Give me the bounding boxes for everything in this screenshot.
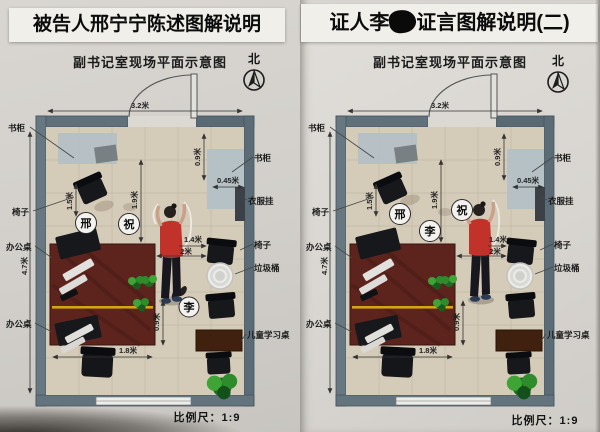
kids-desk [496,330,542,351]
floor-stain [438,208,452,216]
trash-bin [207,263,233,289]
clothes-rack [235,187,245,221]
floor-plan-right: 3.2米 4.7米 1.5米 1.9米 0.9米 0.45米 1.4米 2米 1… [300,0,600,432]
label-office-desk-lower: 办公桌 [306,319,332,329]
dim-chair: 1.5米 [64,192,74,210]
dim-room-width: 3.2米 [131,100,149,110]
dim-desk-chair: 2米 [489,246,501,256]
svg-text:祝: 祝 [124,217,135,231]
label-chair-right: 椅子 [254,240,272,250]
label-bookcase-left: 书柜 [8,123,26,133]
dim-desk-width: 1.8米 [419,345,437,355]
dim-bookcase-depth: 0.9米 [492,148,502,166]
dim-room-width: 3.2米 [431,100,449,110]
dim-person-chair: 1.4米 [184,234,202,244]
label-kids-desk: 儿童学习桌 [546,330,590,340]
marker-zhu: 祝 [452,200,473,221]
label-bookcase-right: 书柜 [554,153,572,163]
label-chair-left: 椅子 [312,207,330,217]
svg-text:李: 李 [424,224,437,238]
chair-right-lower [205,292,237,320]
dim-door: 1.9米 [429,191,439,209]
bookcase-shadow [94,145,118,164]
dim-room-height: 4.7米 [319,257,329,275]
svg-text:邢: 邢 [80,217,92,230]
left-document-page: 被告人邢宁宁陈述图解说明 副书记室现场平面示意图 北 [0,0,300,432]
dim-desk-offset: 0.9米 [451,313,461,331]
dim-person-chair: 1.4米 [489,234,507,244]
dim-door: 1.9米 [129,191,139,209]
dim-desk-width: 1.8米 [119,345,137,355]
label-bookcase-left: 书柜 [308,123,326,133]
svg-text:邢: 邢 [394,208,406,221]
dim-desk-chair: 2米 [180,246,192,256]
kids-chair [505,351,532,374]
scale-label: 比例尺：1:9 [174,410,241,424]
label-trash-bin: 垃圾桶 [254,263,280,273]
label-office-desk-upper: 办公桌 [306,242,332,252]
label-chair-left: 椅子 [12,207,30,217]
door-opening [428,116,496,127]
label-chair-right: 椅子 [554,240,572,250]
chair-bottom-center [79,346,116,378]
label-trash-bin: 垃圾桶 [554,263,580,273]
trash-bin [507,263,533,289]
door-opening [128,116,196,127]
label-bookcase-right: 书柜 [254,153,272,163]
window [96,397,191,405]
floor-plan-left: 3.2米 4.7米 1.5米 1.9米 0.9米 0.45米 1.4米 2米 1… [0,0,300,432]
label-clothes-rack: 衣服挂 [548,196,574,206]
label-kids-desk: 儿童学习桌 [246,330,290,340]
window [396,397,491,405]
scale-label: 比例尺：1:9 [512,413,579,427]
clothes-rack [535,187,545,221]
bookcase-shadow [394,145,418,164]
chair-right-upper [205,237,237,265]
dim-room-height: 4.7米 [19,257,29,275]
dim-desk-offset: 0.9米 [151,313,161,331]
marker-zhu: 祝 [119,214,140,235]
right-document-page: 证人李证言图解说明(二) 副书记室现场平面示意图 北 [300,0,600,432]
dim-chair: 1.5米 [364,192,374,210]
dim-bookcase-depth: 0.9米 [192,148,202,166]
label-office-desk-lower: 办公桌 [6,319,32,329]
marker-xing: 邢 [390,204,411,225]
marker-li: 李 [179,297,199,317]
marker-xing: 邢 [76,213,97,234]
chair-bottom-center [379,346,416,378]
chair-right-lower [505,292,537,320]
svg-text:李: 李 [183,300,196,314]
dim-bookcase-offset: 0.45米 [217,175,240,185]
chair-right-upper [505,237,537,265]
label-clothes-rack: 衣服挂 [248,196,274,206]
svg-text:祝: 祝 [457,203,468,217]
kids-desk [196,330,242,351]
label-office-desk-upper: 办公桌 [6,242,32,252]
kids-chair [205,351,232,374]
dim-bookcase-offset: 0.45米 [517,175,540,185]
marker-li: 李 [420,221,441,242]
